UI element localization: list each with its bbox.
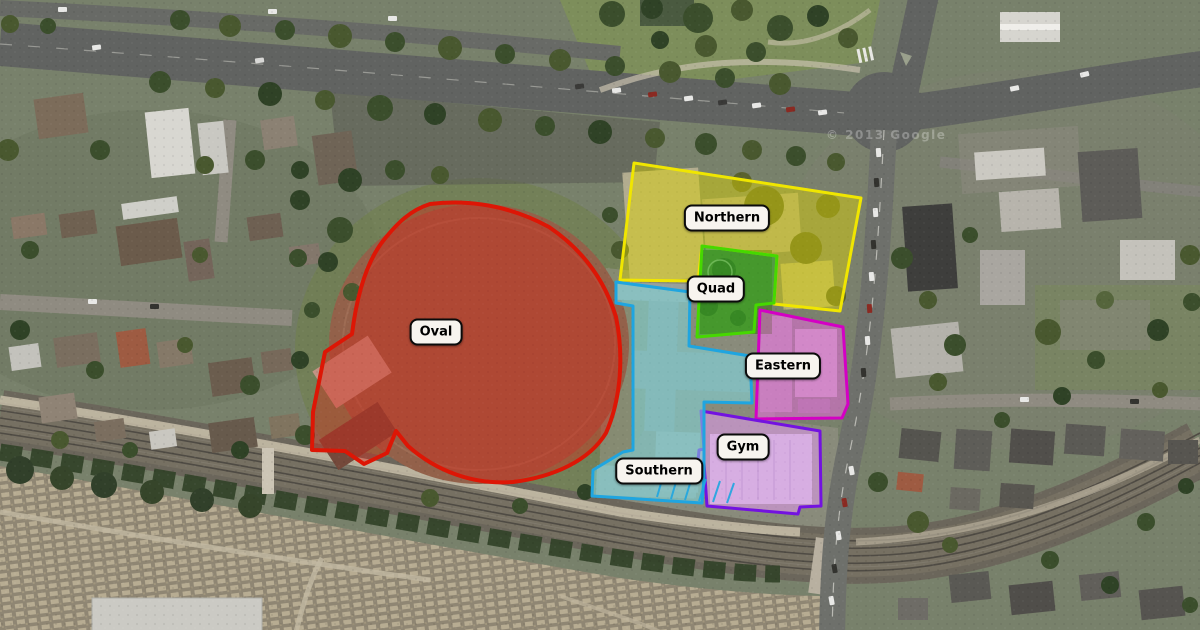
label-northern[interactable]: Northern: [684, 205, 770, 232]
label-southern[interactable]: Southern: [615, 458, 703, 485]
satellite-map: Oval Northern Quad Eastern Gym Southern …: [0, 0, 1200, 630]
label-eastern[interactable]: Eastern: [745, 353, 821, 380]
label-oval[interactable]: Oval: [410, 319, 463, 346]
label-quad[interactable]: Quad: [687, 276, 745, 303]
label-gym[interactable]: Gym: [717, 434, 770, 461]
basemap-canvas: [0, 0, 1200, 630]
imagery-attribution-watermark: © 2013 Google: [826, 128, 946, 142]
